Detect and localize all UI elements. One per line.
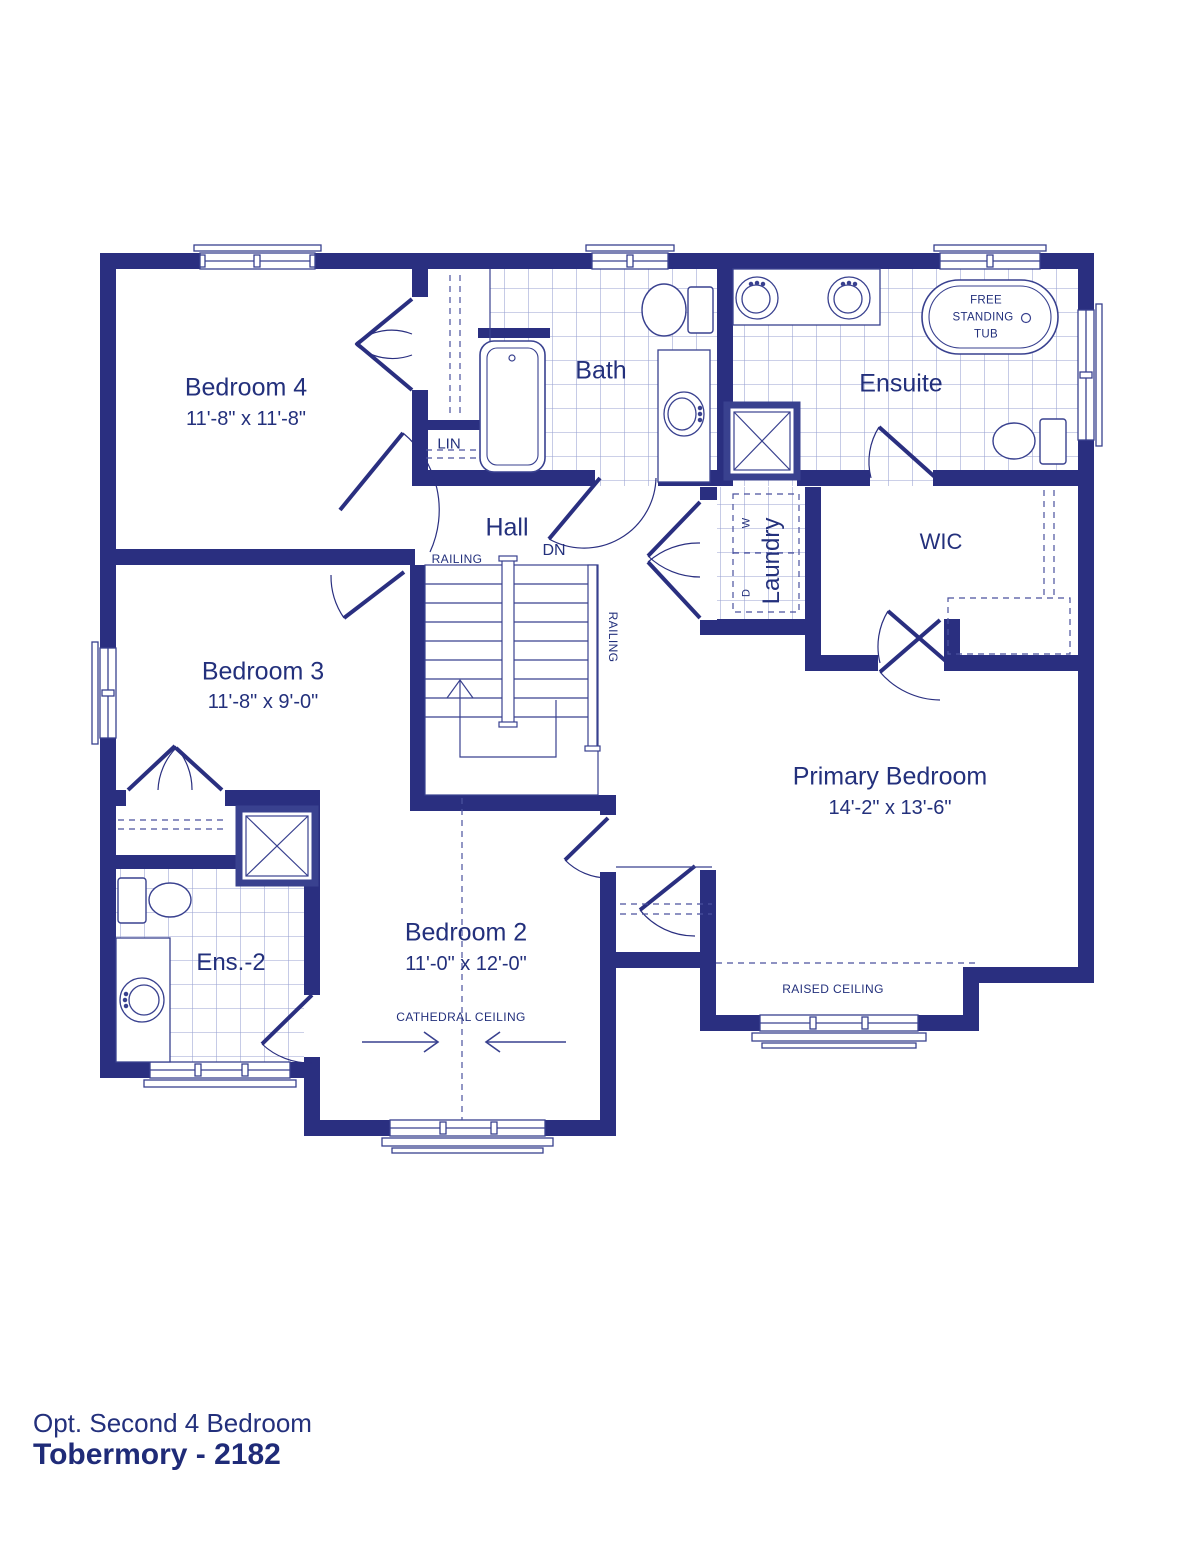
stair-railing [588, 565, 597, 747]
bath-tub [480, 341, 545, 472]
bath-window [586, 245, 674, 269]
cathedral-arrows [362, 1032, 566, 1052]
free-tub-label-line1: FREE [970, 295, 1002, 307]
laundry-label: Laundry [760, 518, 784, 605]
bedroom3-closet-leaf-1 [128, 746, 175, 790]
ensuite-vanity [733, 269, 880, 325]
bedroom3-door-leaf [344, 572, 404, 618]
floor-plan-page: Bedroom 4 11'-8" x 11'-8" Bath Ensuite F… [0, 0, 1200, 1552]
primary-bedroom-label: Primary Bedroom [793, 765, 988, 790]
bedroom2-door-leaf [565, 818, 608, 860]
ens2-window [144, 1062, 296, 1087]
plan-option-title: Opt. Second 4 Bedroom [33, 1408, 312, 1439]
bath-label: Bath [575, 359, 626, 384]
ensuite-shower [727, 405, 797, 477]
free-tub-label-line3: TUB [974, 329, 998, 341]
ensuite-window [934, 245, 1046, 269]
stair-divider [502, 559, 514, 723]
bedroom2-label: Bedroom 2 [405, 921, 527, 946]
bedroom4-double-door-leaf-2 [356, 343, 412, 390]
railing-top-label: RAILING [432, 553, 483, 565]
bedroom4-dims: 11'-8" x 11'-8" [186, 409, 306, 429]
ens2-shower [239, 809, 315, 883]
bedroom2-bay-window [382, 1120, 553, 1153]
linen-closet-label: LIN [437, 437, 460, 452]
raised-ceiling-label: RAISED CEILING [782, 983, 884, 995]
wic-label: WIC [920, 531, 963, 553]
bedroom4-label: Bedroom 4 [185, 376, 307, 401]
laundry-door-leaf-1 [648, 502, 700, 556]
ens2-label: Ens.-2 [196, 951, 265, 975]
dryer-label: D [742, 589, 753, 597]
stairs-down-label: DN [542, 543, 565, 559]
laundry-door-leaf-2 [648, 562, 700, 618]
bedroom4-window [194, 245, 321, 269]
bedroom2-dims: 11'-0" x 12'-0" [405, 954, 527, 974]
bedroom3-label: Bedroom 3 [202, 660, 324, 685]
bedroom4-entry-door-leaf [340, 433, 403, 510]
primary-bedroom-dims: 14'-2" x 13'-6" [828, 798, 951, 818]
bath-vanity [658, 350, 710, 482]
bedroom3-closet-leaf-2 [176, 748, 222, 790]
ens2-vanity [116, 938, 170, 1062]
plan-model-title: Tobermory - 2182 [33, 1438, 281, 1472]
bath-door-leaf [549, 478, 600, 539]
washer-label: W [742, 518, 753, 528]
bedroom4-double-door-leaf-1 [356, 299, 412, 345]
primary-window [752, 1015, 926, 1048]
ensuite-label: Ensuite [859, 372, 942, 397]
stairs [425, 556, 600, 795]
ensuite-side-window [1078, 304, 1102, 446]
cathedral-ceiling-label: CATHEDRAL CEILING [396, 1011, 526, 1023]
bedroom3-dims: 11'-8" x 9'-0" [208, 692, 318, 712]
floor-plan-drawing [0, 0, 1200, 1552]
bath-toilet [642, 284, 713, 336]
free-tub-label-line2: STANDING [953, 312, 1014, 324]
bedroom3-window [92, 642, 116, 744]
railing-side-label: RAILING [607, 612, 619, 663]
hall-label: Hall [485, 516, 528, 541]
